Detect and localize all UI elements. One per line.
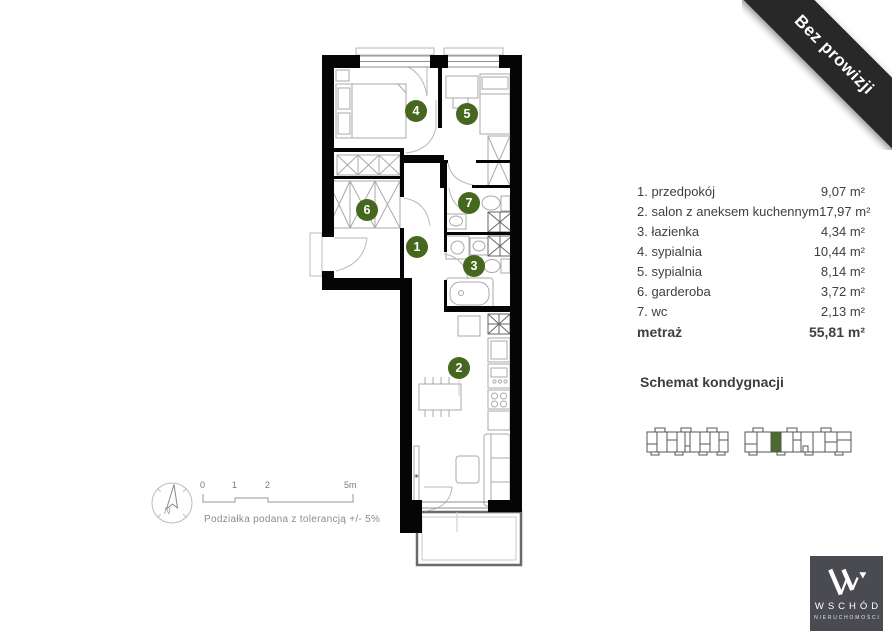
- room-area: 17,97 m²: [819, 205, 870, 219]
- compass-icon: N: [150, 481, 194, 525]
- logo-title: WSCHÓD: [811, 601, 882, 612]
- room-badge-5: 5: [456, 103, 478, 125]
- building-schematic-right: [743, 426, 853, 458]
- room-list-item: 5. sypialnia 8,14 m²: [637, 265, 865, 279]
- room-area: 8,14 m²: [821, 265, 865, 279]
- room-label: 4. sypialnia: [637, 245, 702, 259]
- window-sill: [356, 48, 434, 55]
- floor-schematic-title: Schemat kondygnacji: [640, 374, 784, 390]
- room-label: 3. łazienka: [637, 225, 699, 239]
- room-list-item: 7. wc 2,13 m²: [637, 305, 865, 319]
- room-area: 9,07 m²: [821, 185, 865, 199]
- room-badge-3: 3: [463, 255, 485, 277]
- building-schematic-left: [645, 426, 730, 458]
- scale-tick-0: 0: [200, 480, 205, 490]
- scale-bar: 0 1 2 5m: [196, 478, 366, 508]
- room-badge-4: 4: [405, 100, 427, 122]
- room-list-item: 3. łazienka 4,34 m²: [637, 225, 865, 239]
- room-area: 4,34 m²: [821, 225, 865, 239]
- room-label: 5. sypialnia: [637, 265, 702, 279]
- scale-tick-2: 2: [265, 480, 270, 490]
- compass-north-label: N: [164, 506, 171, 516]
- scale-tick-5m: 5m: [344, 480, 357, 490]
- scale-tolerance-note: Podziałka podana z tolerancją +/- 5%: [204, 514, 380, 525]
- no-commission-ribbon: Bez prowizji: [742, 0, 892, 150]
- room-list-item: 1. przedpokój 9,07 m²: [637, 185, 865, 199]
- building-schematics: [645, 426, 853, 458]
- window-sill: [444, 48, 503, 55]
- agency-logo: WSCHÓD NIERUCHOMOŚCI: [810, 556, 883, 631]
- room-list: 1. przedpokój 9,07 m² 2. salon z aneksem…: [637, 185, 865, 345]
- room-area: 2,13 m²: [821, 305, 865, 319]
- room-label: 2. salon z aneksem kuchennym: [637, 205, 819, 219]
- room-list-item: 2. salon z aneksem kuchennym 17,97 m²: [637, 205, 865, 219]
- entry-niche: [310, 233, 322, 276]
- room-label: 6. garderoba: [637, 285, 711, 299]
- room-area: 3,72 m²: [821, 285, 865, 299]
- room-badge-6: 6: [356, 199, 378, 221]
- balcony: [417, 512, 521, 565]
- total-area-label: metraż: [637, 325, 682, 339]
- room-list-item: 6. garderoba 3,72 m²: [637, 285, 865, 299]
- room-label: 1. przedpokój: [637, 185, 715, 199]
- room-badge-2: 2: [448, 357, 470, 379]
- total-area-value: 55,81 m²: [809, 325, 865, 339]
- scale-tick-1: 1: [232, 480, 237, 490]
- ribbon-container: Bez prowizji: [742, 0, 892, 150]
- logo-subtitle: NIERUCHOMOŚCI: [812, 615, 880, 621]
- logo-w-icon: [824, 567, 870, 597]
- room-badge-7: 7: [458, 192, 480, 214]
- room-area: 10,44 m²: [814, 245, 865, 259]
- highlighted-unit: [771, 432, 781, 452]
- room-label: 7. wc: [637, 305, 667, 319]
- room-badge-1: 1: [406, 236, 428, 258]
- room-list-item: 4. sypialnia 10,44 m²: [637, 245, 865, 259]
- total-area-row: metraż 55,81 m²: [637, 325, 865, 339]
